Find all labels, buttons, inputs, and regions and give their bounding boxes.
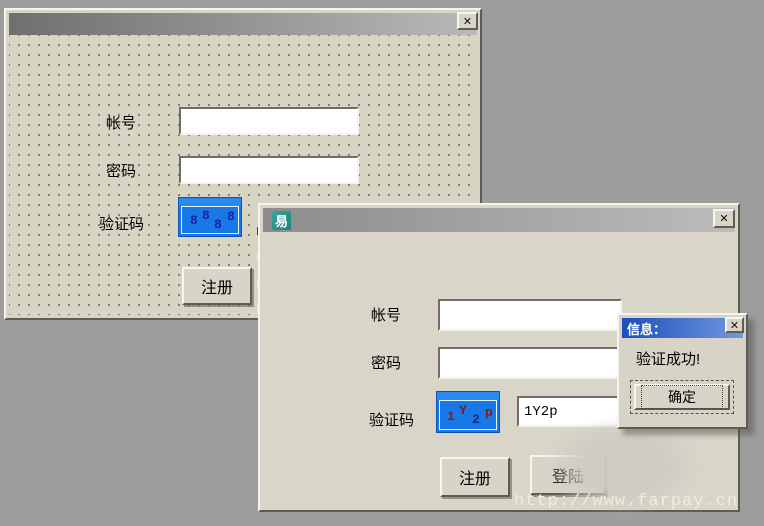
dialog-close-button[interactable]: ✕	[725, 317, 744, 333]
password-label: 密码	[106, 160, 136, 181]
captcha-label: 验证码	[369, 409, 414, 430]
dialog-message: 验证成功!	[636, 348, 700, 369]
password-input[interactable]	[179, 156, 359, 184]
app-close-button[interactable]: ✕	[713, 209, 735, 228]
account-input[interactable]	[438, 299, 622, 331]
register-button[interactable]: 注册	[182, 267, 252, 305]
captcha-char: 8	[202, 208, 210, 223]
password-label: 密码	[371, 352, 401, 373]
captcha-char: 8	[190, 213, 198, 228]
dialog-title: 信息：	[627, 319, 666, 338]
designer-close-button[interactable]: ✕	[457, 12, 478, 30]
captcha-body: 1 Y 2 p	[439, 400, 497, 430]
captcha-input[interactable]	[517, 396, 623, 427]
captcha-image[interactable]: 8 8 8 8	[178, 197, 242, 237]
close-icon: ✕	[730, 319, 739, 332]
captcha-top-strip	[437, 392, 499, 400]
login-button-label: 登陆	[552, 463, 584, 487]
register-button-label: 注册	[201, 274, 233, 298]
register-button[interactable]: 注册	[440, 457, 510, 497]
captcha-char: Y	[459, 403, 467, 418]
app-icon: 易	[272, 211, 291, 230]
app-titlebar[interactable]: 易	[263, 208, 735, 232]
captcha-char: 8	[214, 217, 222, 232]
captcha-body: 8 8 8 8	[181, 206, 239, 234]
close-icon: ✕	[463, 15, 472, 28]
message-dialog: 信息： ✕ 验证成功! 确定	[617, 313, 748, 429]
captcha-label: 验证码	[99, 213, 144, 234]
ok-button[interactable]: 确定	[634, 384, 730, 410]
captcha-top-strip	[179, 198, 241, 206]
captcha-char: 1	[447, 409, 455, 424]
account-label: 帐号	[371, 304, 401, 325]
account-input[interactable]	[179, 107, 359, 135]
password-input[interactable]	[438, 347, 622, 379]
captcha-image[interactable]: 1 Y 2 p	[436, 391, 500, 433]
ok-button-label: 确定	[641, 385, 723, 409]
captcha-char: 8	[227, 209, 235, 224]
desktop: ✕ 帐号 密码 验证码 8 8 8 8 注册	[0, 0, 764, 526]
close-icon: ✕	[719, 212, 728, 225]
captcha-char: p	[485, 405, 493, 420]
login-button[interactable]: 登陆	[530, 455, 606, 495]
captcha-char: 2	[472, 412, 480, 427]
account-label: 帐号	[106, 112, 136, 133]
designer-titlebar[interactable]	[9, 13, 477, 35]
register-button-label: 注册	[459, 465, 491, 489]
